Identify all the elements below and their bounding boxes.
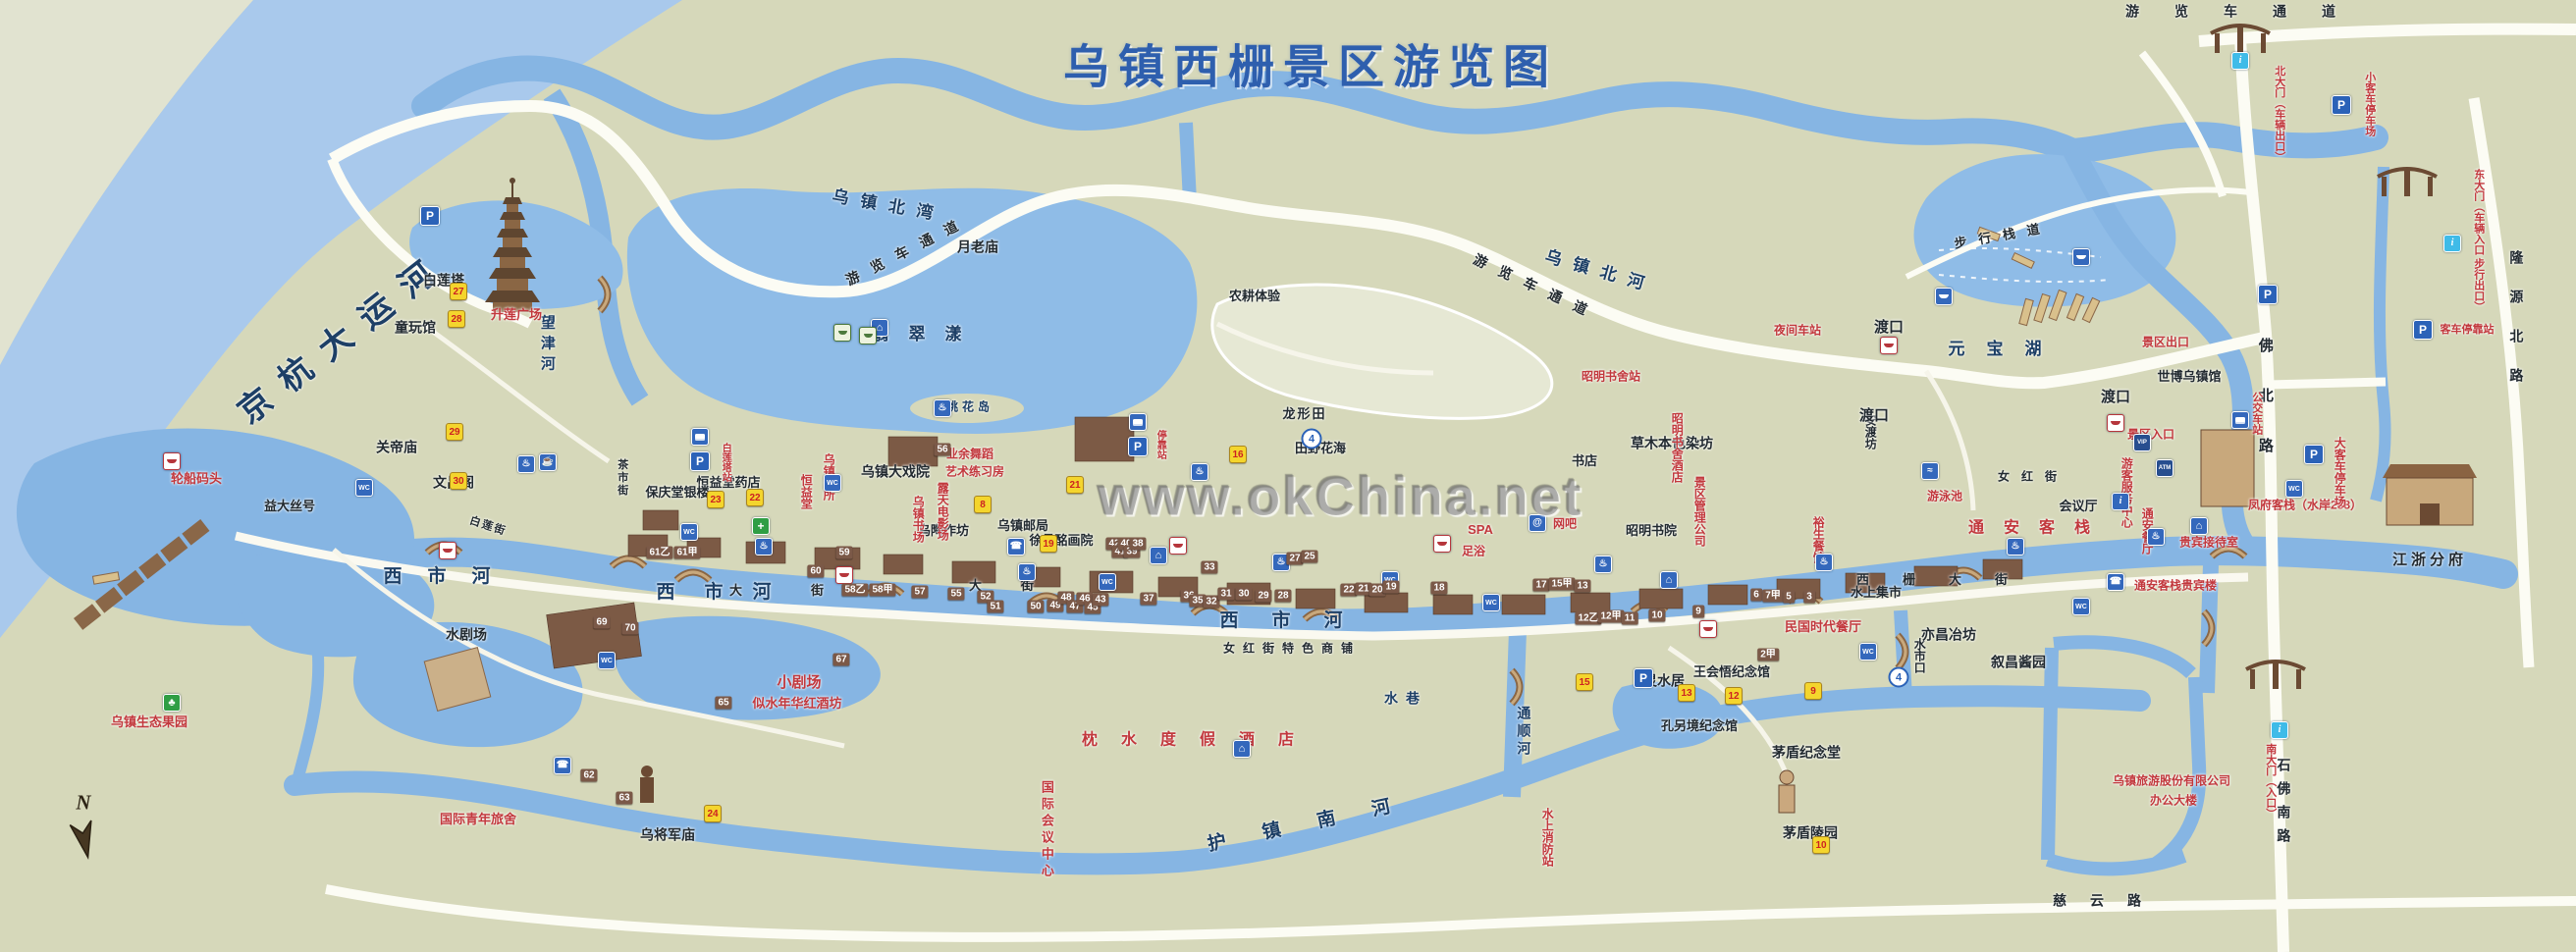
compass-north-label: N [76,791,90,816]
attraction-number-plaque: 16 [1229,446,1247,463]
shop-number-plaque: 61甲 [673,547,700,559]
map-title: 乌镇西栅景区游览图 [1063,29,1558,97]
attraction-number-plaque: 28 [448,310,465,328]
shop-number-plaque: 56 [934,444,950,456]
attraction-number-plaque: 27 [450,283,467,300]
shop-number-plaque: 70 [621,622,638,635]
shop-number-plaque: 30 [1235,588,1252,601]
shop-number-plaque: 61乙 [646,547,672,559]
shop-number-plaque: 60 [807,565,824,578]
shop-number-plaque: 3 [1803,591,1815,604]
shop-number-plaque: 7甲 [1762,590,1784,603]
zone-badge: 4 [1889,667,1909,688]
attraction-number-plaque: 10 [1812,836,1830,854]
shop-number-plaque: 19 [1382,581,1399,594]
attraction-number-plaque: 8 [974,496,992,513]
shop-number-plaque: 6 [1750,589,1762,602]
shop-number-plaque: 57 [911,586,928,599]
shop-number-plaque: 58乙 [841,584,868,597]
shop-number-plaque: 28 [1274,590,1291,603]
shop-number-plaque: 13 [1574,580,1590,593]
wuzhen-west-scenic-map: 京杭大运河西市河西市河西市河乌镇北湾乌镇北河望津河护镇南河通顺河水巷元宝湖翡翠漾… [0,0,2576,952]
attraction-number-plaque: 21 [1066,476,1084,494]
shop-number-plaque: 50 [1027,601,1044,613]
shop-number-plaque: 17 [1532,579,1549,592]
shop-number-plaque: 11 [1622,612,1638,625]
shop-number-plaque: 69 [593,616,610,629]
attraction-number-plaque: 23 [707,491,724,508]
shop-number-plaque: 62 [580,769,597,782]
attraction-number-plaque: 13 [1678,684,1695,702]
attraction-number-plaque: 22 [746,489,764,506]
attraction-number-plaque: 19 [1040,535,1057,553]
shop-number-plaque: 63 [616,792,632,805]
shop-number-plaque: 37 [1140,593,1156,606]
attraction-number-plaque: 30 [450,472,467,490]
shop-number-plaque: 55 [947,588,964,601]
shop-number-plaque: 67 [832,654,849,666]
shop-number-plaque: 59 [835,547,852,559]
shop-number-plaque: 10 [1648,609,1665,622]
attraction-number-plaque: 29 [446,423,463,441]
shop-number-plaque: 51 [987,601,1003,613]
shop-number-plaque: 43 [1092,594,1108,607]
attraction-number-plaque: 9 [1804,682,1822,700]
shop-number-plaque: 31 [1217,588,1234,601]
shop-number-plaque: 58甲 [869,584,895,597]
shop-number-plaque: 33 [1201,561,1217,574]
shop-number-plaque: 12甲 [1597,610,1624,623]
watermark: www.okChina.net [1098,464,1583,528]
attraction-number-plaque: 12 [1725,687,1743,705]
shop-number-plaque: 9 [1692,606,1704,618]
shop-number-plaque: 5 [1783,591,1795,604]
attraction-number-plaque: 15 [1576,673,1593,691]
attraction-number-plaque: 24 [704,805,722,822]
shop-number-plaque: 25 [1301,551,1317,563]
shop-number-plaque: 15甲 [1548,578,1575,591]
shop-number-plaque: 29 [1255,590,1271,603]
shop-number-plaque: 38 [1129,538,1146,551]
shop-number-plaque: 65 [715,697,731,710]
shop-number-plaque: 18 [1430,582,1447,595]
shop-number-plaque: 2甲 [1757,649,1779,661]
zone-badge: 4 [1302,429,1322,450]
